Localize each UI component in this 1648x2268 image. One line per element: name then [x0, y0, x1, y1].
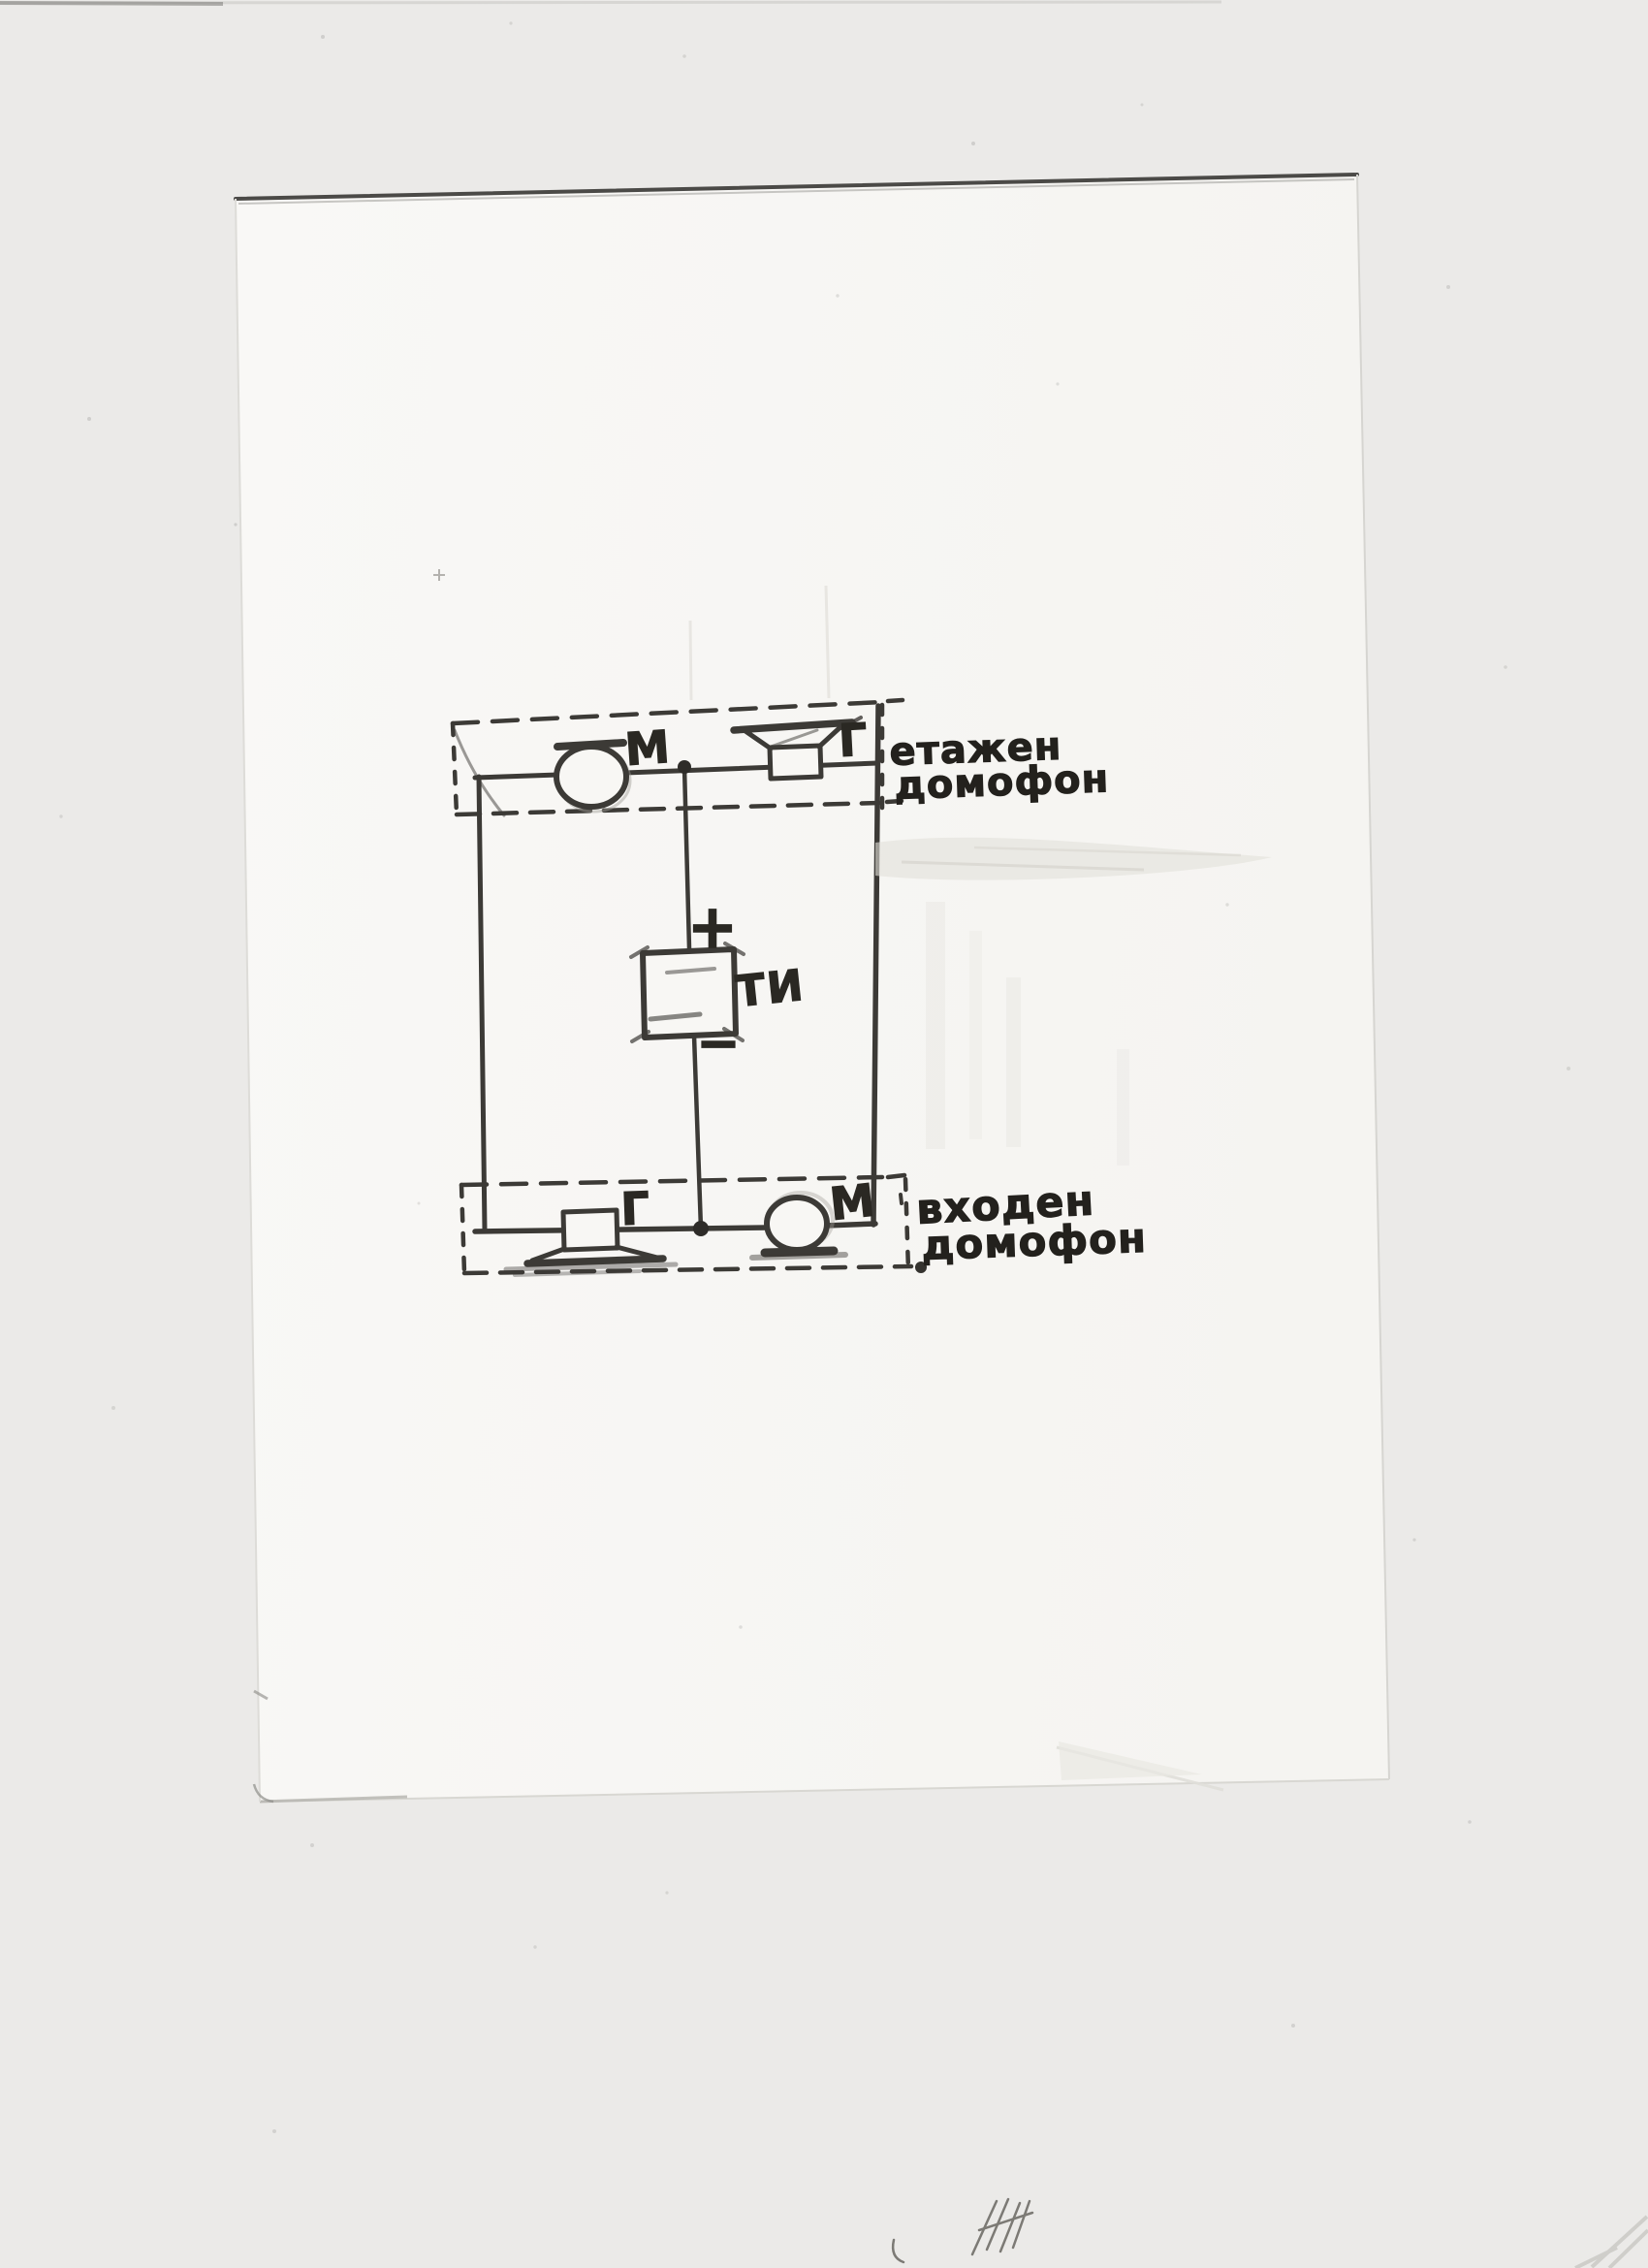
dust: [1141, 104, 1144, 107]
dust: [682, 54, 686, 58]
ink-ghost: [969, 931, 982, 1139]
microphone-body: [556, 747, 626, 807]
paper-sheet: [236, 175, 1389, 1802]
speaker-box: [770, 746, 821, 779]
dust: [971, 142, 975, 145]
scanned-page: М Г етажен домофон + − ТИ: [0, 0, 1648, 2268]
dust: [321, 35, 325, 39]
speaker-horn-base: [527, 1259, 663, 1263]
dust: [836, 294, 839, 297]
dust: [87, 417, 91, 421]
power-supply-label: ТИ: [734, 961, 808, 1017]
dust: [509, 21, 512, 24]
dust: [1504, 665, 1507, 669]
junction-dot-top: [678, 760, 691, 774]
junction-dot-bottom: [693, 1221, 709, 1236]
microphone-body: [767, 1198, 827, 1250]
dust: [310, 1843, 314, 1847]
ink-ghost: [1006, 977, 1021, 1147]
dust: [59, 815, 62, 817]
wire-top-left: [475, 775, 558, 778]
floor-intercom-label-line2: домофон: [894, 756, 1110, 809]
dust: [234, 523, 237, 526]
dust: [272, 2129, 276, 2133]
microphone-base-bar: [765, 1251, 834, 1253]
dust: [1446, 285, 1450, 289]
dust: [1225, 903, 1228, 906]
dash-overshoot: [888, 700, 903, 701]
microphone-label: М: [623, 720, 671, 776]
dust: [1412, 1538, 1415, 1541]
dust: [739, 1625, 743, 1629]
dust: [111, 1406, 115, 1410]
speaker-label: Г: [838, 714, 869, 767]
paper-surface: [236, 175, 1389, 1802]
dash-tick: [901, 1195, 902, 1203]
entrance-intercom-label-line2: домофон: [921, 1214, 1148, 1269]
scanner-edge-artifact-dark: [0, 3, 223, 4]
dust: [1291, 2024, 1295, 2028]
dust: [418, 1202, 421, 1205]
microphone-label: М: [828, 1173, 877, 1230]
dust: [1468, 1820, 1472, 1824]
polarity-plus: +: [687, 891, 738, 962]
dust: [665, 1891, 668, 1894]
polarity-minus: −: [696, 1012, 740, 1073]
ink-ghost: [926, 902, 945, 1149]
construction-line: [690, 621, 691, 700]
dash-arrow-mark: [888, 1175, 904, 1177]
ink-ghost: [1117, 1049, 1129, 1166]
dust: [1567, 1067, 1570, 1070]
microphone-base-smear: [752, 1255, 845, 1258]
speaker-box: [563, 1210, 618, 1250]
dust: [533, 1945, 536, 1948]
dust: [1056, 382, 1059, 385]
microphone-top-bar: [557, 743, 623, 747]
speaker-label: Г: [619, 1182, 650, 1235]
